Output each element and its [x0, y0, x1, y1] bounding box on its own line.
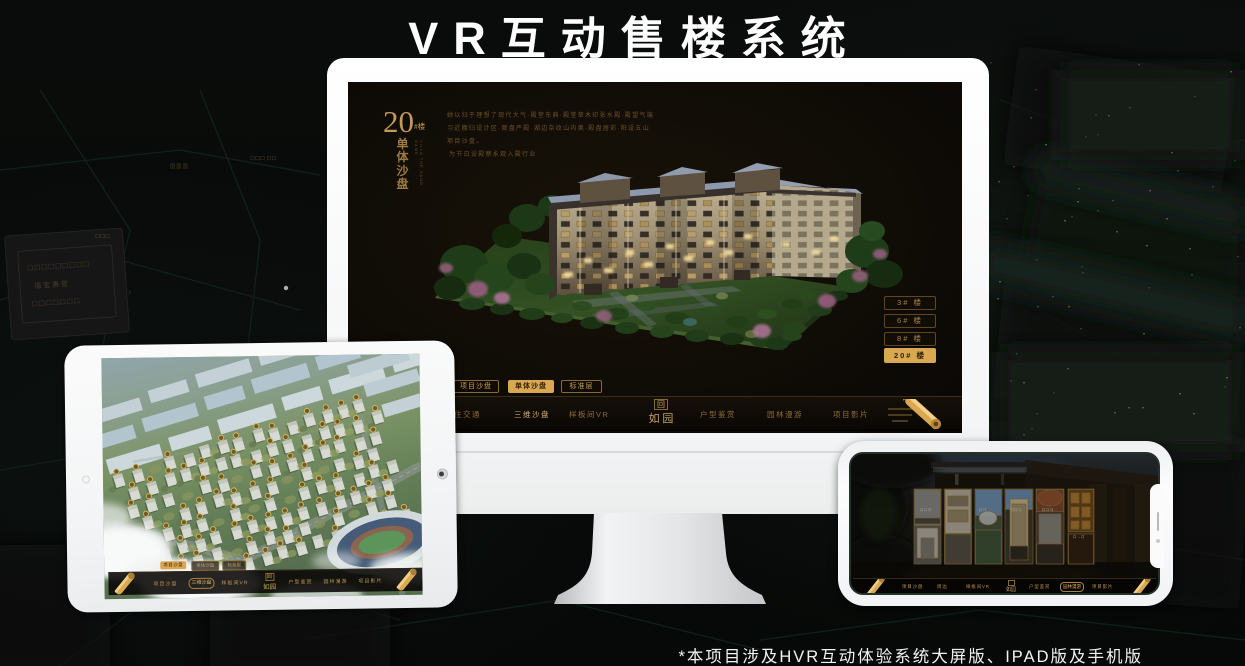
svg-text:›: › — [128, 287, 131, 298]
svg-text:口口口 口口: 口口口 口口 — [250, 156, 276, 162]
svg-text:国 国 国: 国 国 国 — [170, 164, 188, 170]
svg-text:口口口: 口口口 — [95, 234, 110, 240]
